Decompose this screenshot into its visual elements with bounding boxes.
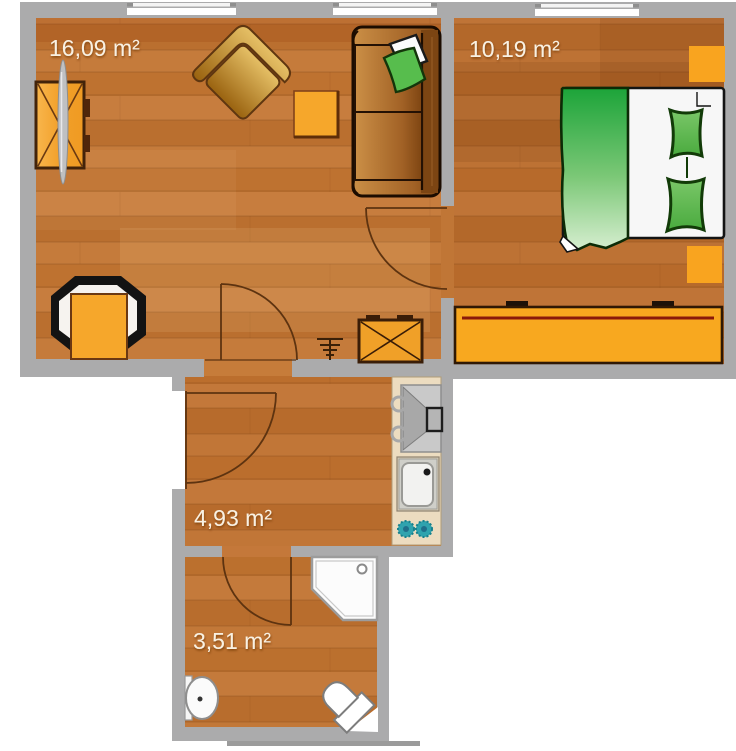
svg-text:10,19 m²: 10,19 m² bbox=[469, 36, 560, 62]
svg-text:4,93 m²: 4,93 m² bbox=[194, 505, 272, 531]
svg-text:3,51 m²: 3,51 m² bbox=[193, 628, 271, 654]
svg-text:16,09 m²: 16,09 m² bbox=[49, 35, 140, 61]
